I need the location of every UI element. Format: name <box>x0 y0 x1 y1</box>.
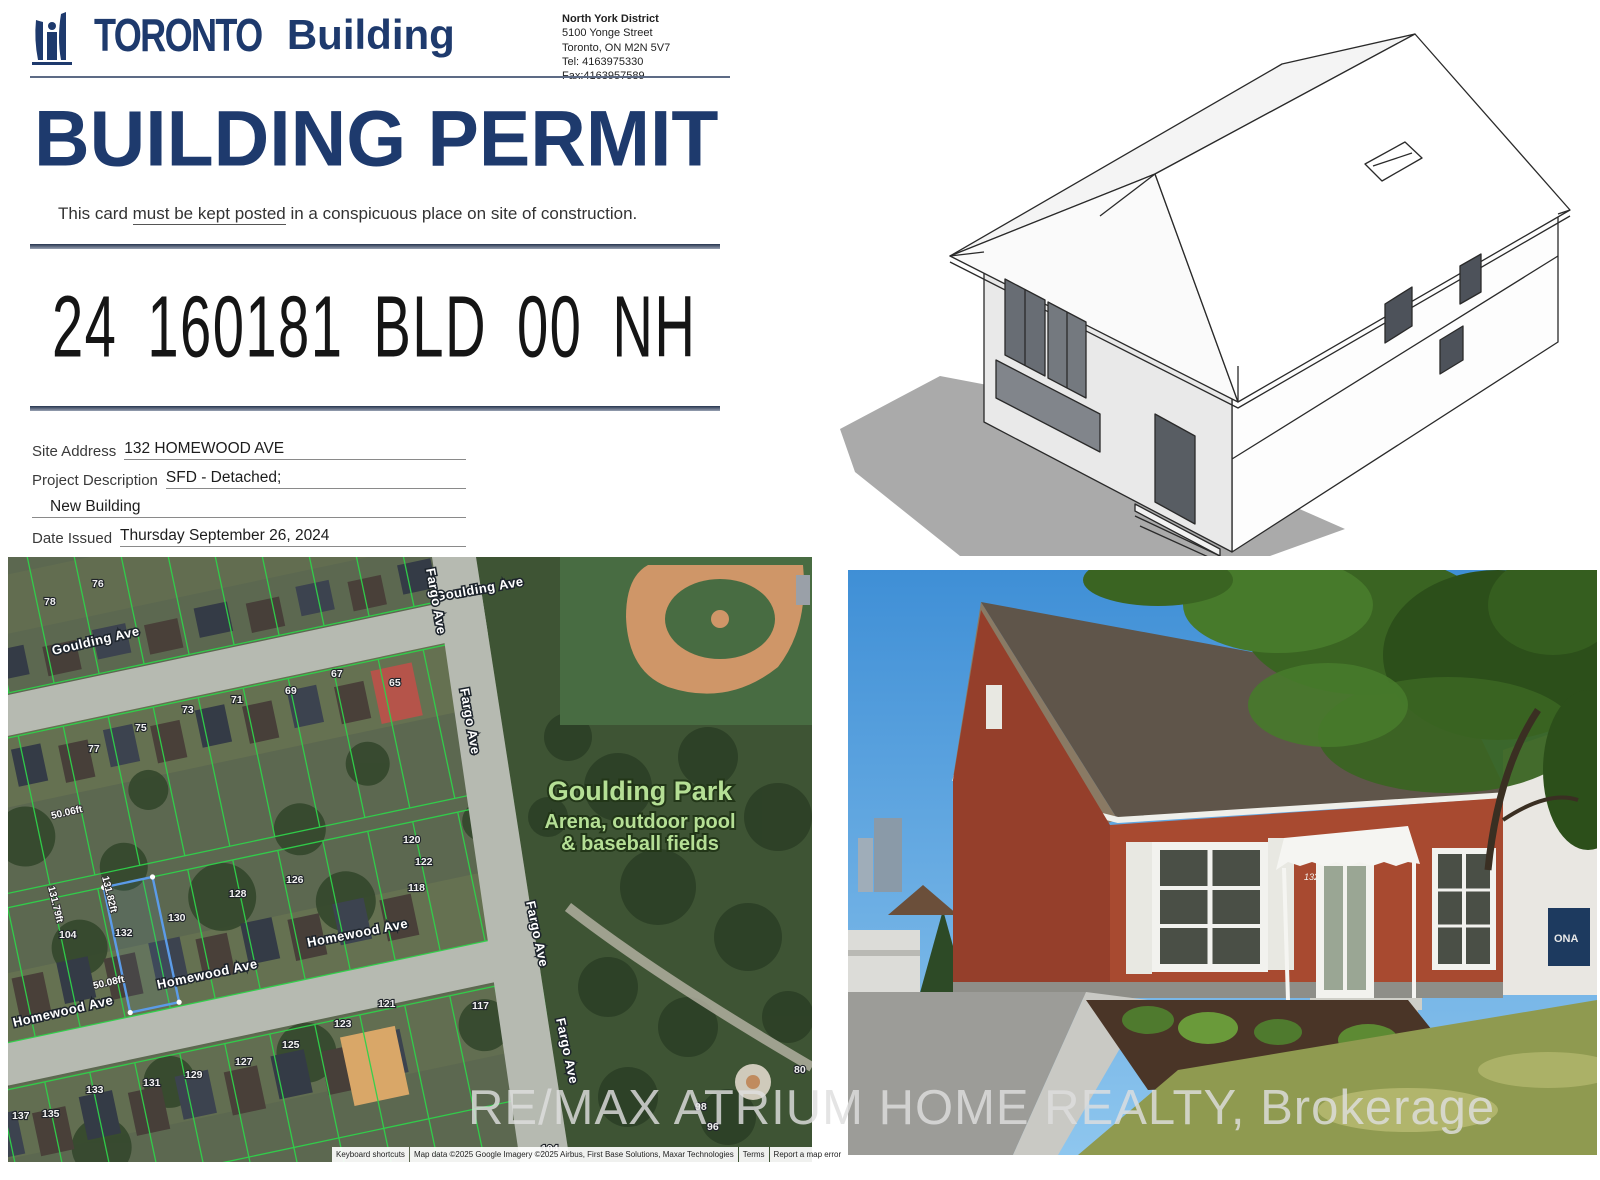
district-address-block: North York District 5100 Yonge Street To… <box>562 12 742 83</box>
header-divider <box>30 76 730 78</box>
park-label-line3: & baseball fields <box>561 833 719 855</box>
page: TORONTO Building North York District 510… <box>0 0 1600 1180</box>
field-row-date-issued: Date Issued Thursday September 26, 2024 <box>32 525 466 547</box>
field-row-site-address: Site Address 132 HOMEWOOD AVE <box>32 438 466 460</box>
keyboard-shortcuts-button[interactable]: Keyboard shortcuts <box>332 1147 409 1162</box>
satellite-map[interactable]: Goulding AveGoulding AveFargo AveFargo A… <box>8 557 812 1162</box>
field-value: New Building <box>32 498 466 518</box>
district-line: North York District <box>562 12 742 26</box>
notice-suffix: in a conspicuous place on site of constr… <box>286 204 638 223</box>
white-shed <box>848 930 920 992</box>
lot-number: 129 <box>185 1069 203 1081</box>
lot-number: 128 <box>229 888 247 900</box>
lot-number: 125 <box>282 1039 300 1051</box>
map-attribution-bar: Keyboard shortcuts Map data ©2025 Google… <box>332 1147 846 1162</box>
divider <box>30 244 720 249</box>
lot-number: 80 <box>794 1064 806 1076</box>
lot-number: 130 <box>168 912 186 924</box>
lot-number: 123 <box>334 1018 352 1030</box>
lot-number: 77 <box>88 743 100 755</box>
field-label: Site Address <box>32 443 124 460</box>
lot-number: 65 <box>389 677 401 689</box>
district-line: Toronto, ON M2N 5V7 <box>562 41 742 55</box>
lot-number: 137 <box>12 1110 30 1122</box>
park-label-line1: Goulding Park <box>548 776 734 806</box>
lot-number: 117 <box>472 1000 489 1012</box>
brokerage-watermark: RE/MAX ATRIUM HOME REALTY, Brokerage <box>468 1080 1495 1136</box>
permit-fields: Site Address 132 HOMEWOOD AVE Project De… <box>32 438 466 554</box>
field-value: SFD - Detached; <box>166 469 466 489</box>
toronto-city-hall-icon <box>30 10 86 72</box>
lot-number: 118 <box>408 882 425 894</box>
house-number: 132 <box>1304 872 1319 882</box>
lot-number: 75 <box>135 722 147 734</box>
lot-number: 78 <box>44 596 56 608</box>
notice-prefix: This card <box>58 204 133 223</box>
listing-photo: 132 ONA <box>848 570 1597 1155</box>
architectural-rendering <box>800 4 1600 556</box>
divider <box>30 406 720 411</box>
lot-number: 133 <box>86 1084 104 1096</box>
permit-title: BUILDING PERMIT <box>34 94 718 184</box>
field-row-project-continuation: New Building <box>32 496 466 518</box>
district-line: 5100 Yonge Street <box>562 26 742 40</box>
report-map-error-link[interactable]: Report a map error <box>770 1147 846 1162</box>
lot-number: 131 <box>143 1077 161 1089</box>
lot-number: 122 <box>415 856 433 868</box>
lot-number: 120 <box>403 834 421 846</box>
permit-number: 24 160181 BLD 00 NH <box>52 276 696 378</box>
notice-underlined: must be kept posted <box>133 204 286 225</box>
lot-number: 67 <box>331 668 343 680</box>
lot-number: 121 <box>378 998 396 1010</box>
brand-building: Building <box>287 11 455 59</box>
permit-notice: This card must be kept posted in a consp… <box>58 204 637 224</box>
field-label: Date Issued <box>32 530 120 547</box>
toronto-building-logo: TORONTO Building <box>30 10 455 72</box>
lot-number: 69 <box>285 685 297 697</box>
lot-number: 126 <box>286 874 304 886</box>
lot-number: 71 <box>231 694 243 706</box>
terms-link[interactable]: Terms <box>739 1147 769 1162</box>
lot-number: 127 <box>235 1056 253 1068</box>
district-line: Tel: 4163975330 <box>562 55 742 69</box>
map-data-credit: Map data ©2025 Google Imagery ©2025 Airb… <box>410 1147 738 1162</box>
building-permit-card: TORONTO Building North York District 510… <box>30 8 760 548</box>
lot-number: 73 <box>182 704 194 716</box>
sign-text: ONA <box>1554 933 1579 945</box>
field-value: 132 HOMEWOOD AVE <box>124 440 466 460</box>
lot-number: 76 <box>92 578 104 590</box>
field-label: Project Description <box>32 472 166 489</box>
lot-number: 132 <box>115 927 133 939</box>
lot-number: 135 <box>42 1108 60 1120</box>
field-value: Thursday September 26, 2024 <box>120 527 466 547</box>
lot-number: 104 <box>59 929 77 941</box>
park-label-line2: Arena, outdoor pool <box>544 811 735 833</box>
distant-tower <box>874 818 902 892</box>
field-row-project-description: Project Description SFD - Detached; <box>32 467 466 489</box>
brand-toronto: TORONTO <box>94 10 262 62</box>
park-label: Goulding Park Arena, outdoor pool & base… <box>544 776 735 855</box>
